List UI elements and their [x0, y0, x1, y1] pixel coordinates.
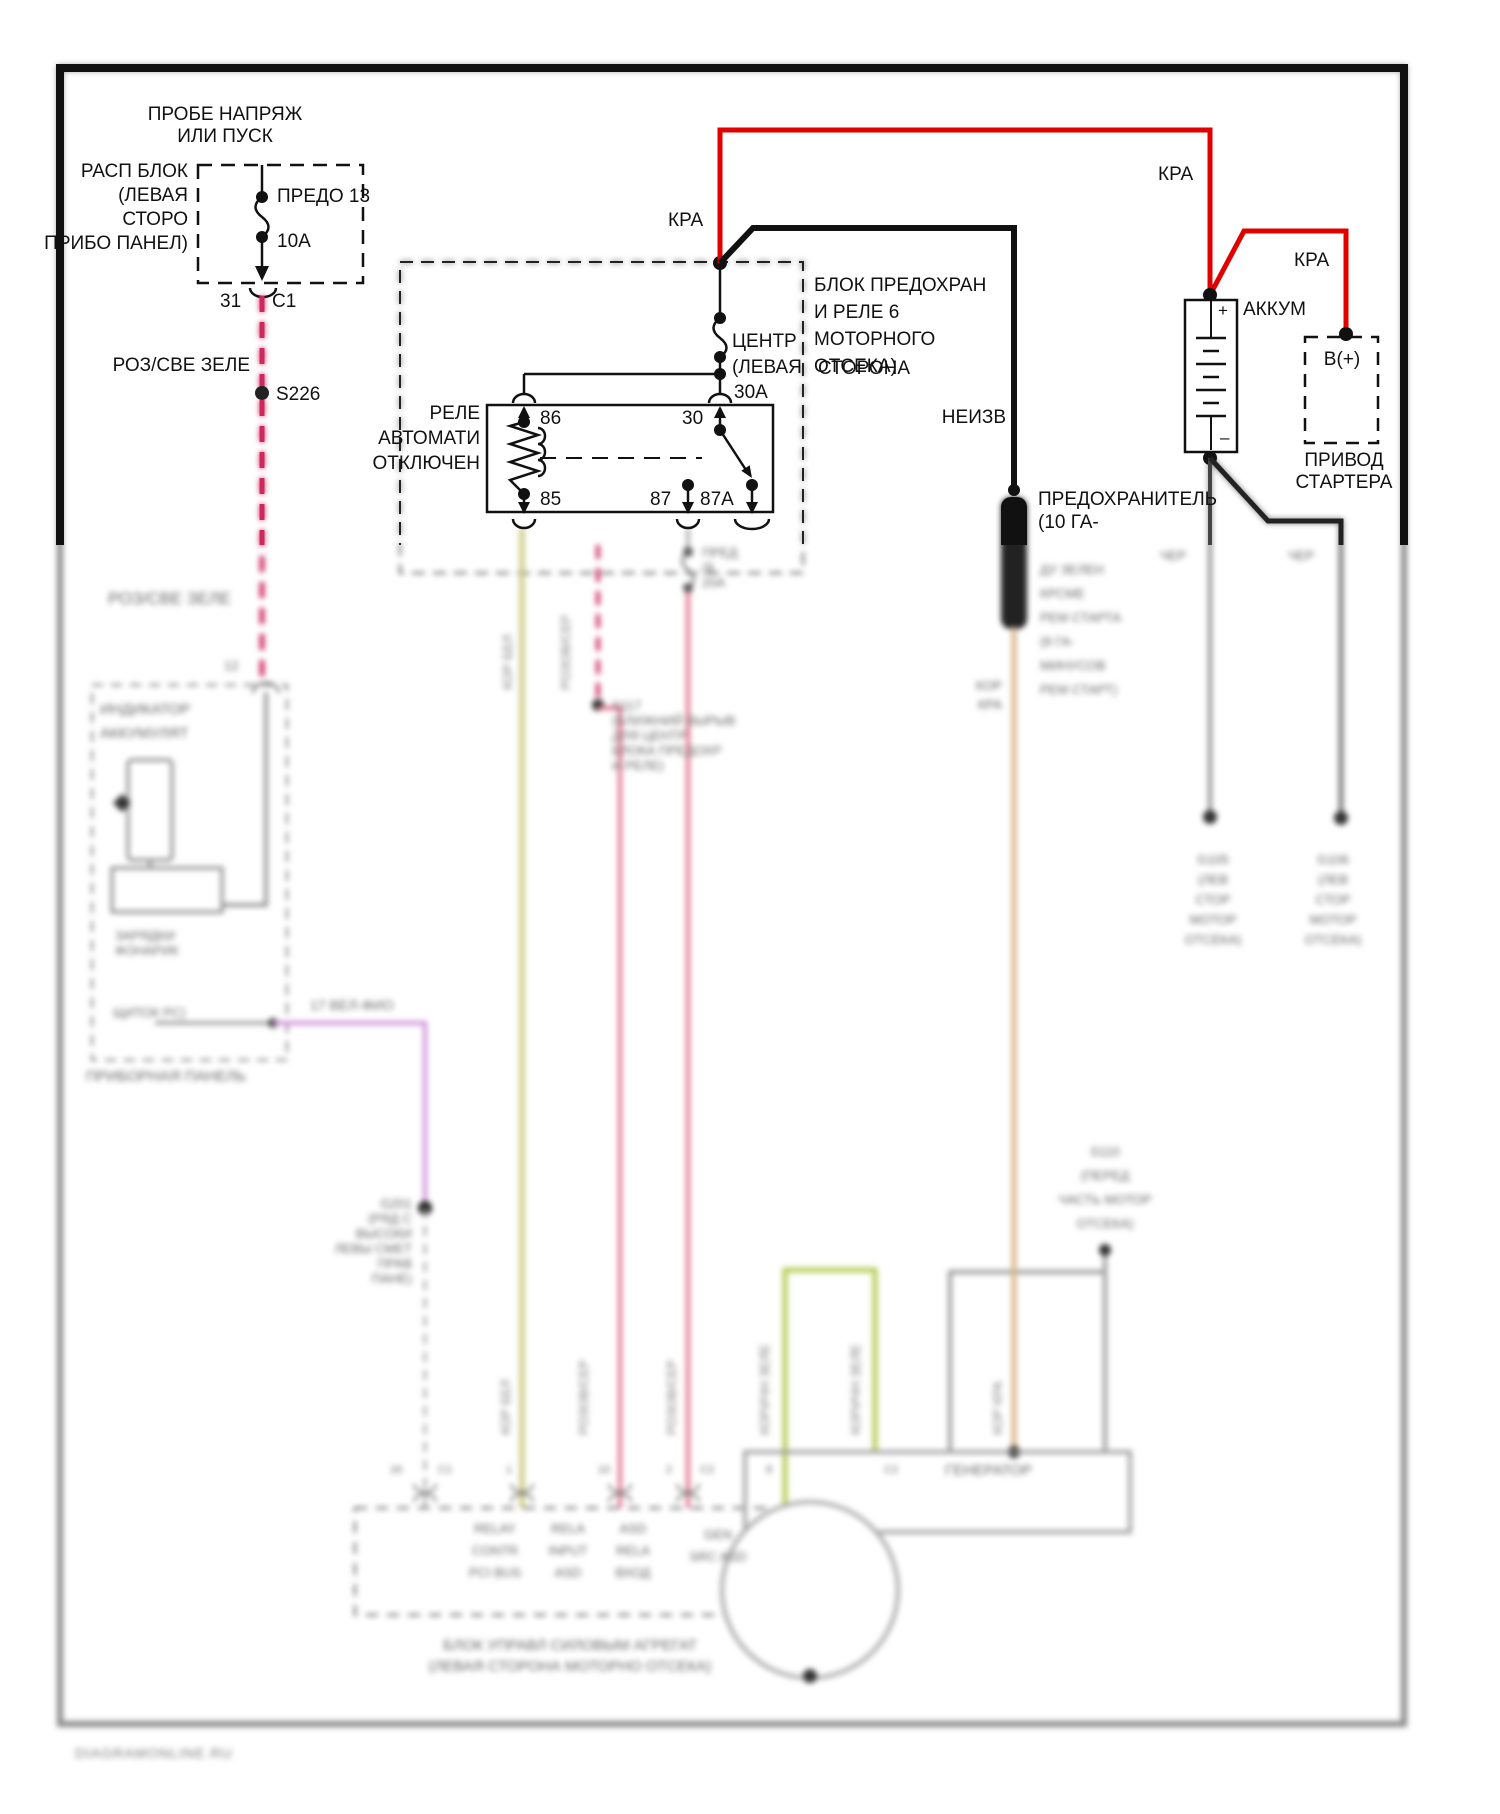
wire-label-pink-blur: РОЗ/СВЕ ЗЕЛЕ [108, 588, 258, 610]
red-wire-main [720, 130, 1210, 295]
battery-plus: + [1218, 300, 1228, 322]
g201-label: G201 (РЯД С ВЫСОКИ ЛЕВЫ СМЕТ ПРАВ ПАНЕ) [300, 1196, 412, 1286]
panel-sub2: ЩИТОК РС) [113, 1005, 223, 1020]
wire-color-rozser-a: РОЗОВ/СЕР [558, 615, 573, 690]
wire-color-korzel-b: КОРИЧН ЗЕЛЕ [848, 1344, 863, 1435]
relay-pin-87: 87 [650, 489, 671, 511]
relay-pin87a-bump [735, 519, 769, 529]
fusible-note: ДУ ЗЕЛЕН КРСМЕ РЕМ СТАРТА (8 ГА- МИНУСОВ… [1040, 558, 1180, 702]
panel-title: ИНДИКАТОР АККУМУЛЯТ [100, 698, 260, 746]
ground-wire1-color: ЧЕР [1160, 548, 1186, 563]
fuse13-arrow [255, 266, 269, 281]
kpa-label-3: КРА [1294, 250, 1338, 272]
panel-caption: ПРИБОРНАЯ ПАНЕЛЬ [86, 1066, 276, 1088]
wire-color-korbel-b: КОР БЕЛ [498, 1379, 513, 1435]
pcm-col4: GEN SRC ASD [676, 1524, 760, 1568]
wire-color-rozser-b: РОЗОВ/СЕР [576, 1360, 591, 1435]
s226-dot [255, 386, 269, 400]
relay-pin87-bump [677, 519, 699, 528]
generator-label: ГЕНЕРАТОР [945, 1460, 1032, 1482]
relay-pin86-bump [513, 394, 535, 403]
relay-pin-30: 30 [682, 408, 703, 430]
pin-8: 8 [766, 1464, 772, 1476]
indicator-lamp-symbol [128, 760, 172, 860]
battery-label: АККУМ [1243, 299, 1306, 321]
starter-terminal: В(+) [1314, 349, 1370, 371]
conn-c1: С1 [272, 291, 312, 313]
pin-31: 31 [220, 291, 250, 313]
g106-label: G106 (ЛЕВ СТОР МОТОР ОТСЕКА) [1300, 850, 1366, 950]
panel-out-label: 17 ВЕЛ-ФИО [310, 998, 430, 1013]
pin-1: 1 [506, 1464, 512, 1476]
pin-10: 10 [598, 1464, 610, 1476]
wire-label-pink: РОЗ/СВЕ ЗЕЛЕ [95, 355, 250, 377]
relay-pin85-bump [513, 519, 535, 528]
watermark: DIAGRAMONLINE.RU [75, 1746, 233, 1761]
wire-color-rozser-c: РОЗОВ/СЕР [664, 1360, 679, 1435]
relay-name: РЕЛЕ АВТОМАТИ ОТКЛЮЧЕН [340, 401, 480, 476]
panel-pin-label: 12 [224, 658, 238, 673]
violet-wire [273, 1023, 425, 1208]
pin-c1: С1 [438, 1464, 452, 1476]
fuse30-amps: 30А [734, 382, 794, 404]
dist-block-label: РАСП БЛОК (ЛЕВАЯ СТОРО ПРИБО ПАНЕЛ) [40, 160, 188, 256]
relay-pin-87a: 87А [700, 489, 734, 511]
relay-pin-86: 86 [540, 408, 561, 430]
pcm-col3: ASD RELA ВХОД [598, 1518, 668, 1584]
fuse13-amps: 10А [277, 231, 337, 253]
grey-loop [950, 1272, 1105, 1452]
fuse87-label: ПРЕД (8 20А [702, 545, 772, 590]
kpa-label-2: КРА [1158, 164, 1202, 186]
battery-minus: – [1220, 427, 1229, 449]
fusible-label: ПРЕДОХРАНИТЕЛЬ (10 ГА- [1038, 488, 1258, 534]
pcm-col1: RELAY CONTR PCI BUS [455, 1518, 535, 1584]
relay-pin-85: 85 [540, 489, 561, 511]
kpa-label-1: КРА [668, 210, 712, 232]
relay-pin30-bump [709, 394, 731, 403]
fusible-wire-label: КОР КРА [946, 676, 1002, 714]
pin-c2b: С2 [884, 1464, 898, 1476]
caution-title: ПРОБЕ НАПРЯЖ ИЛИ ПУСК [130, 104, 320, 148]
g105-label: G105 (ЛЕВ СТОР МОТОР ОТСЕКА) [1180, 850, 1246, 950]
fuse30-name2: СТОРОНА [818, 358, 938, 380]
pcm-caption: БЛОК УПРАВЛ СИЛОВЫМ АГРЕГАТ (ЛЕВАЯ СТОРО… [320, 1635, 820, 1677]
wire-color-korkra: КОР КРА [990, 1381, 1005, 1435]
pcm-col2: RELA INPUT ASD [531, 1518, 605, 1584]
fuse13-label: ПРЕДО 13 [277, 186, 387, 208]
panel-sub: ЗАРЯДКИ ФОНАРИК [115, 928, 225, 958]
ground-wire2-color: ЧЕР [1288, 548, 1314, 563]
relay-coil [510, 422, 538, 494]
s226-label: S226 [276, 384, 346, 406]
wiring-diagram-page: РОЗ/СВЕ ЗЕЛЕ 12 ИНДИКАТОР АККУМУЛЯТ ЗАРЯ… [0, 0, 1500, 1814]
pin-c2: С2 [700, 1464, 714, 1476]
dist-block-box [198, 165, 363, 283]
s110-dot [1099, 1244, 1111, 1256]
s117-label: S117 (БЛИЖНИЙ ВЫРЫВ ДЛЯ ЦЕНТР БЛОКА ПРЕД… [612, 698, 772, 773]
s110-label: S110 (ПЕРЕД ЧАСТЬ МОТОР ОТСЕКА) [1055, 1140, 1155, 1236]
pink-wire-1 [598, 708, 620, 1508]
wire-color-korbel-a: КОР БЕЛ [500, 634, 515, 690]
relay-switch [720, 430, 746, 470]
starter-label: ПРИВОД СТАРТЕРА [1284, 450, 1404, 494]
pin-16: 16 [390, 1464, 402, 1476]
wire-color-korzel-a: КОРИЧН ЗЕЛЕ [757, 1344, 772, 1435]
neizv-label: НЕИЗВ [920, 407, 1006, 429]
pin-2: 2 [666, 1464, 672, 1476]
